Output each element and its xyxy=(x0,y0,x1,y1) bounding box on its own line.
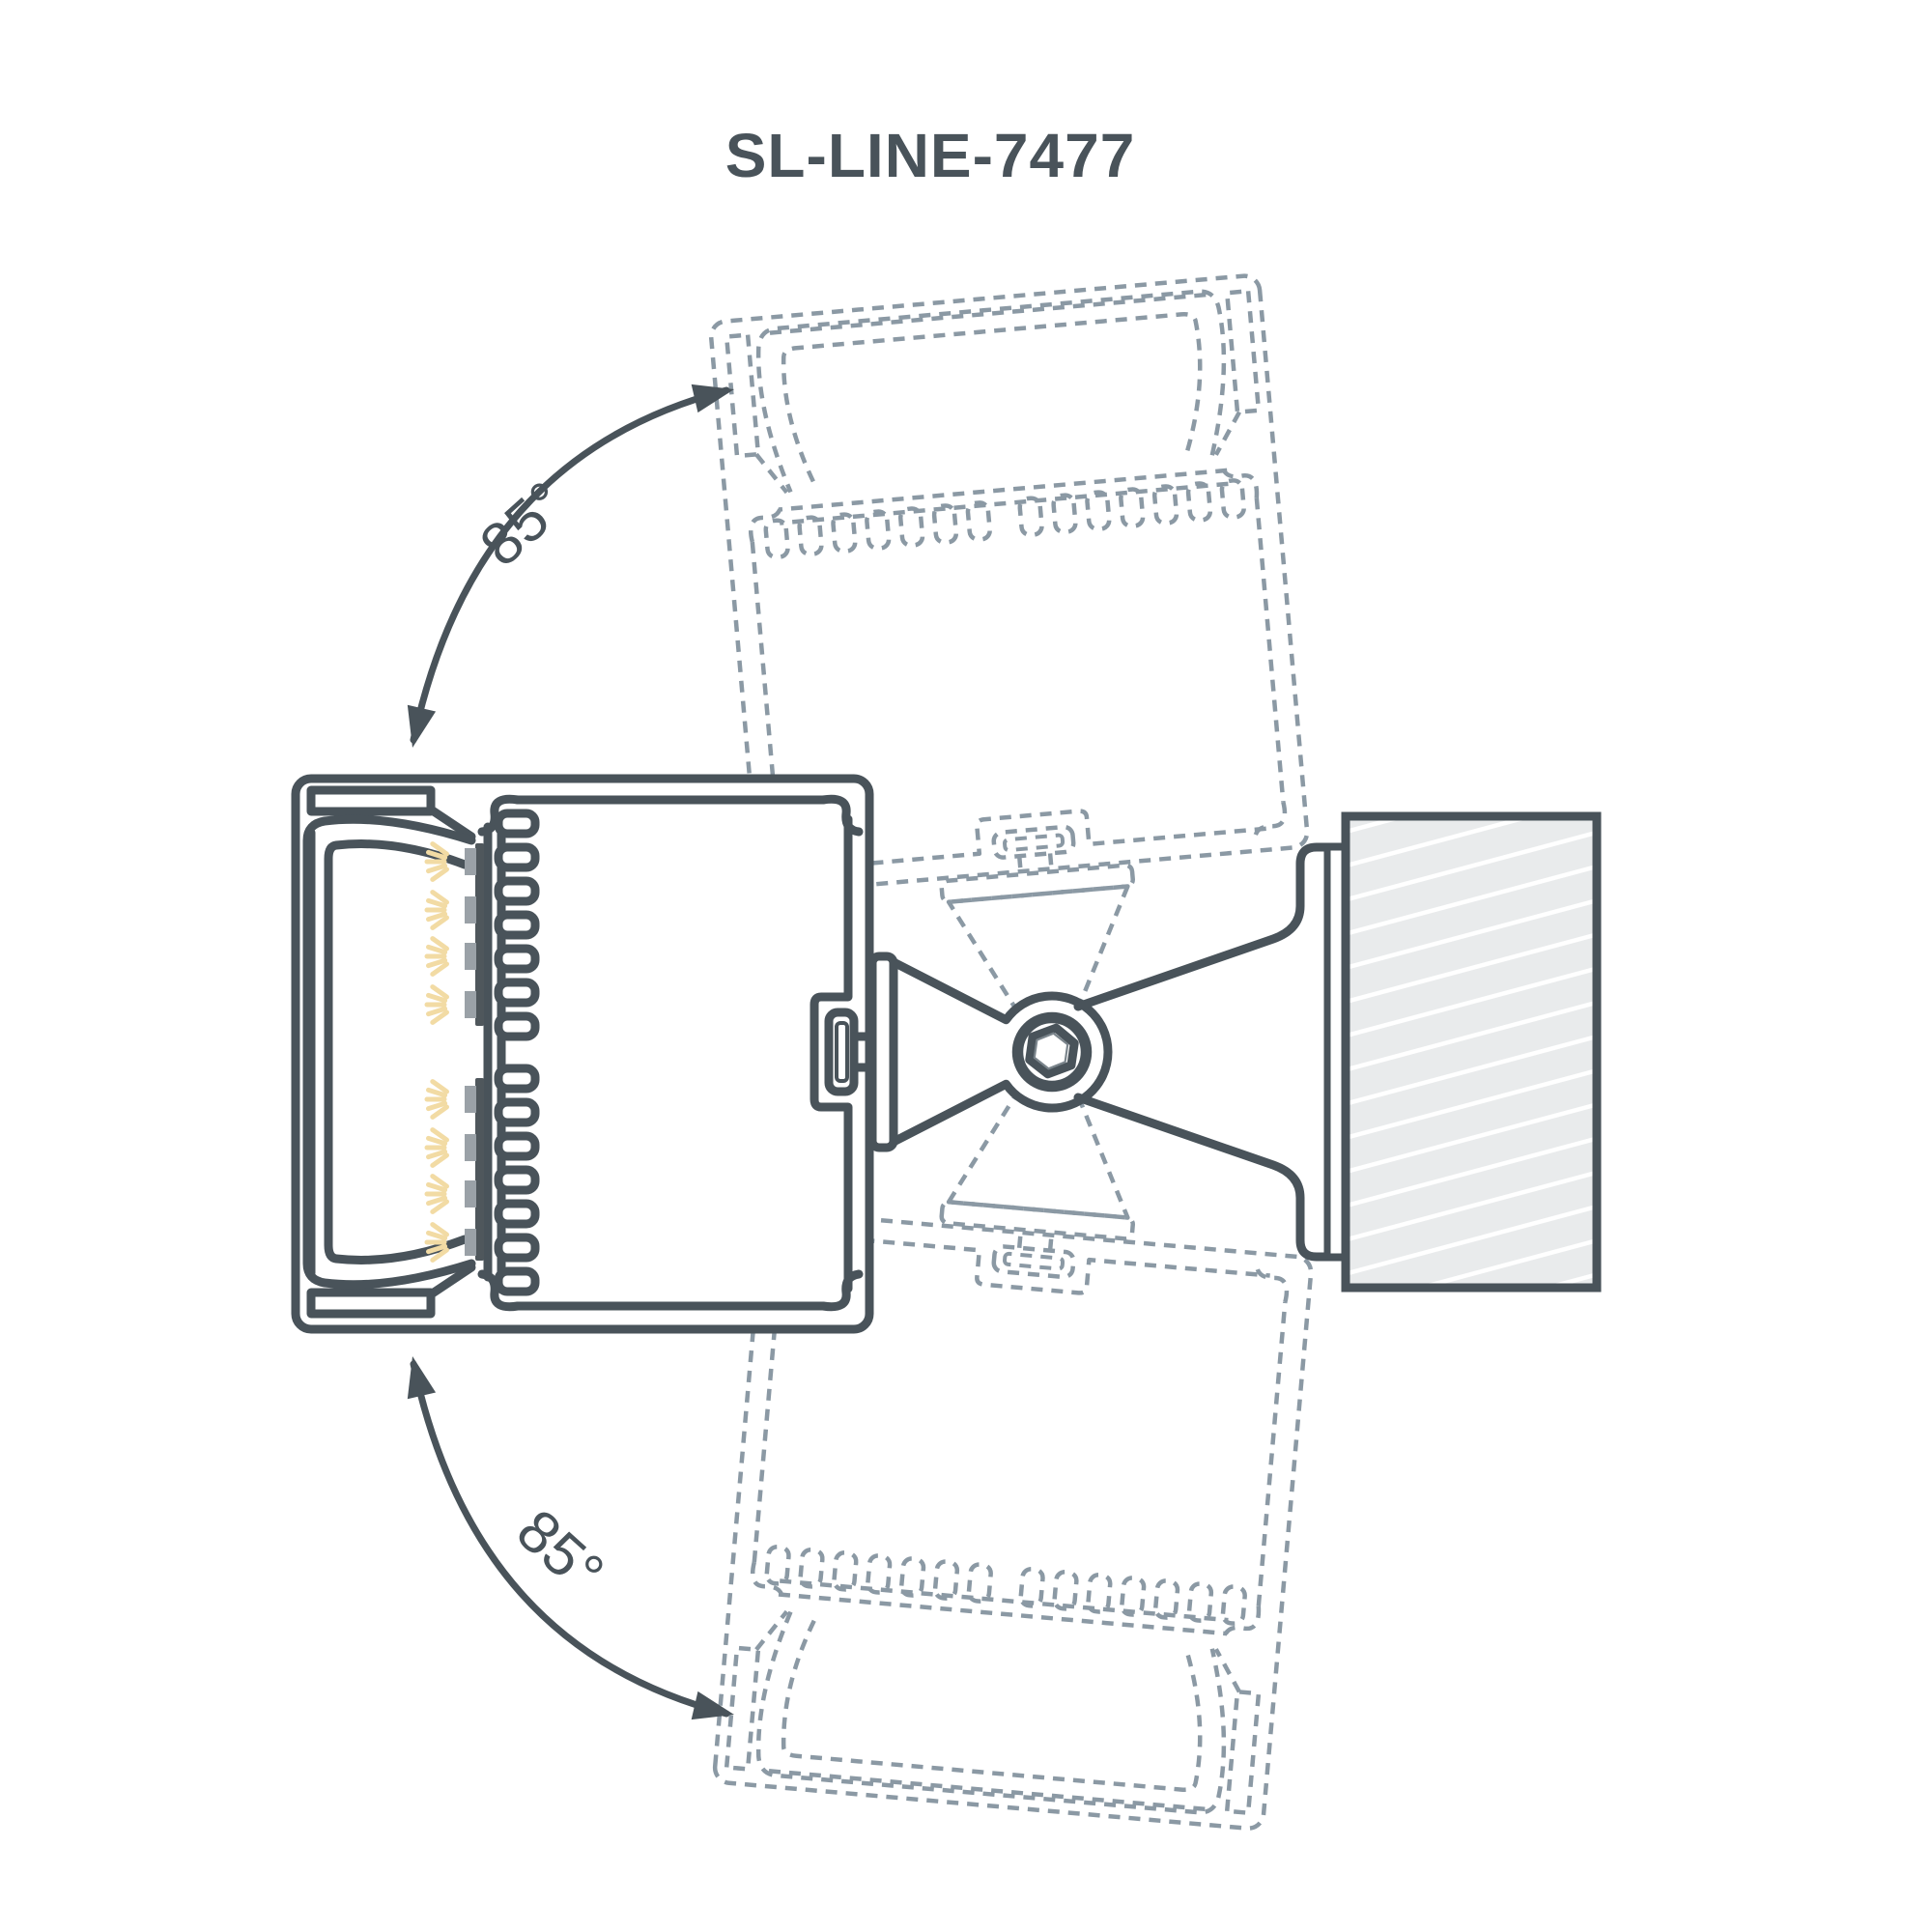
led-bar-bottom xyxy=(475,1078,484,1261)
page-title: SL-LINE-7477 xyxy=(725,121,1136,190)
arrow-up-icon xyxy=(398,1353,436,1400)
bracket-arm-top xyxy=(1078,847,1343,1007)
technical-diagram: SL-LINE-7477 85° 85° xyxy=(0,0,1932,1932)
luminaire-cross-section xyxy=(296,779,1108,1329)
rotation-arc-top xyxy=(398,375,737,751)
arrow-down-icon xyxy=(398,705,436,752)
diagram-canvas: SL-LINE-7477 85° 85° xyxy=(0,0,1932,1932)
mounting-wall xyxy=(1346,816,1597,1288)
hex-screw-icon xyxy=(1018,1018,1087,1087)
bracket-arm-bottom xyxy=(1078,1097,1343,1257)
led-bar-top xyxy=(475,843,484,1026)
